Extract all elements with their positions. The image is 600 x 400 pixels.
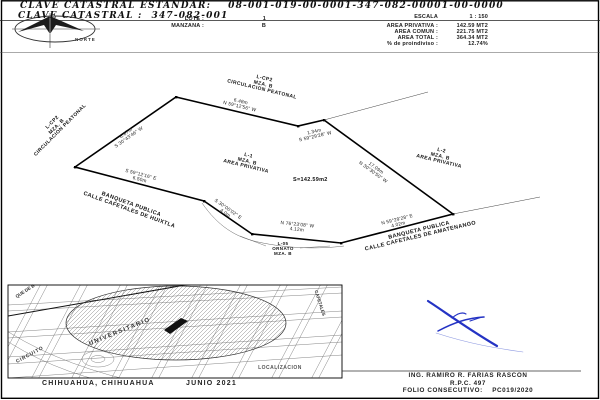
lot1-area-label: S=142.59m2 [293,178,328,184]
extension-line-right [453,197,540,214]
north-label: NORTE [75,37,96,42]
lote-value: 1 [204,16,266,22]
clave-catastral-label: CLAVE CATASTRAL : [18,11,142,21]
surveyor-name: ING. RAMIRO R. FARIAS RASCON [352,372,584,380]
scale-info-block: ESCALA 1 : 150 AREA PRIVATIVA : 142.59 M… [350,14,488,47]
area-value: S=142.59m2 [293,178,328,184]
manzana-value: B [204,23,266,29]
localizacion-label: LOCALIZACION [258,365,302,371]
zone-line: MZA. B [272,251,293,256]
lot-info-block: LOTE : 1 MANZANA : B [140,16,266,29]
proindiviso-label: % de proindiviso : [350,41,438,47]
surveyor-block: ING. RAMIRO R. FARIAS RASCON R.P.C. 497 … [352,372,584,395]
zone-label-ornato: L-05 ORNATO MZA. B [272,242,293,256]
caption-city: CHIHUAHUA, CHIHUAHUA [42,380,155,387]
surveyor-rpc: R.P.C. 497 [352,380,584,388]
caption-date: JUNIO 2021 [186,380,237,387]
escala-value: 1 : 150 [438,14,488,20]
signature [428,301,523,352]
escala-label: ESCALA [350,14,438,20]
folio-consecutivo: FOLIO CONSECUTIVO: PC019/2020 [352,387,584,395]
clave-estandar-value: 08-001-019-00-0001-347-082-00001-00-0000 [228,1,504,11]
cadastral-plan-sheet: CLAVE CATASTRAL ESTANDAR: 08-001-019-00-… [0,0,600,400]
clave-estandar-label: CLAVE CATASTRAL ESTANDAR: [20,1,211,11]
lote-label: LOTE : [140,16,204,22]
manzana-label: MANZANA : [140,23,204,29]
proindiviso-value: 12.74% [438,41,488,47]
clave-estandar-line: CLAVE CATASTRAL ESTANDAR: 08-001-019-00-… [20,1,504,11]
extension-line-top [324,92,428,120]
